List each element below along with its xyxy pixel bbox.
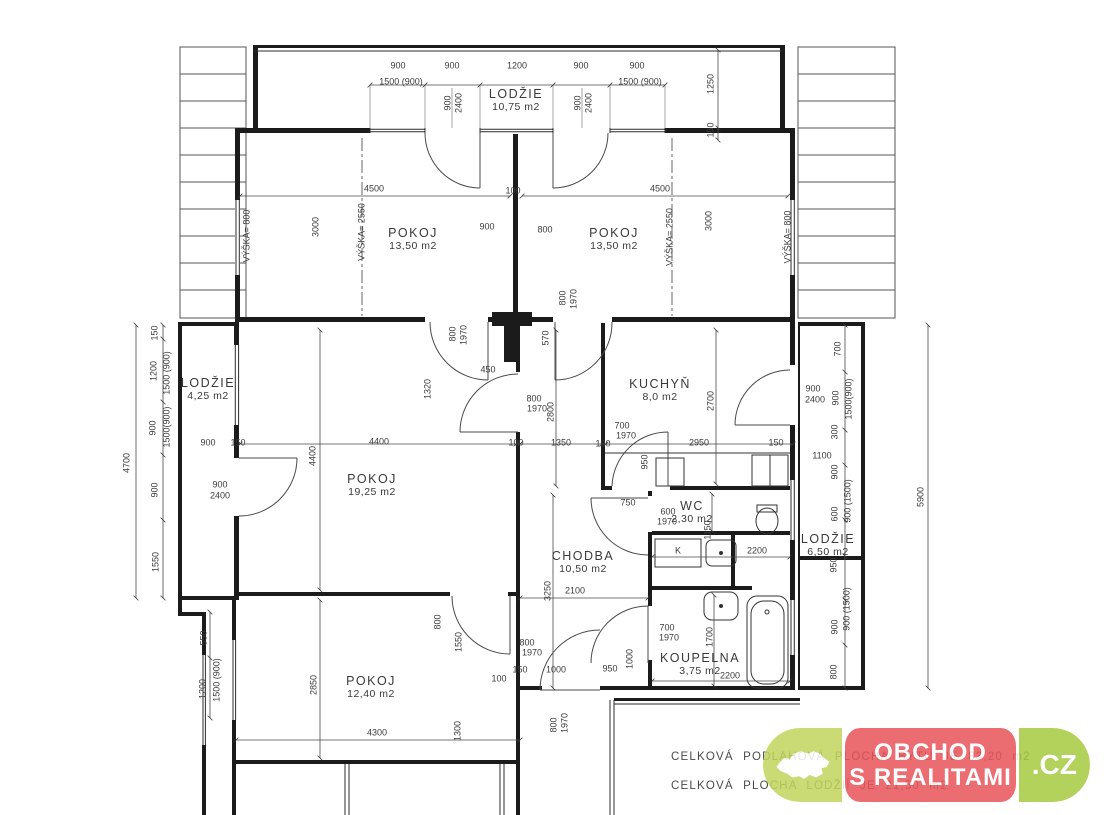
dimension-label: 700 xyxy=(659,624,674,633)
dimension-label: 2850 xyxy=(310,675,319,695)
dimension-label: 100 xyxy=(508,439,523,448)
logo-tld-text: .CZ xyxy=(1032,749,1077,781)
room-area: 4,25 m2 xyxy=(181,390,235,402)
dimension-label: 900 (1500) xyxy=(843,587,852,631)
dimension-label: 1500(900) xyxy=(845,378,854,419)
dimension-label: 2100 xyxy=(565,587,585,596)
dimension-label: 1970 xyxy=(657,518,677,527)
dimension-label: 1970 xyxy=(527,405,547,414)
dimension-label: 900 xyxy=(151,482,160,497)
dimension-label: 150 xyxy=(151,325,160,340)
dimension-label: 1700 xyxy=(706,627,715,647)
room-name: POKOJ xyxy=(388,226,438,240)
dimension-label: 2800 xyxy=(547,402,556,422)
room-area: 13,50 m2 xyxy=(589,240,639,252)
dimension-label: 1500 (900) xyxy=(163,351,172,395)
dimension-label: 3250 xyxy=(544,581,553,601)
dimension-label: 1550 xyxy=(455,632,464,652)
dimension-label: 800 xyxy=(830,664,839,679)
dimension-label: 2200 xyxy=(720,672,740,681)
dimension-label: 4300 xyxy=(367,729,387,738)
dimension-label: 1970 xyxy=(460,325,469,345)
logo-word-obchod: OBCHOD xyxy=(874,740,987,765)
dimension-label: 900 xyxy=(200,439,215,448)
walls xyxy=(178,45,865,815)
dimension-label: 1970 xyxy=(561,713,570,733)
dimension-label: 1200 xyxy=(199,679,208,699)
dimension-label: 1000 xyxy=(626,649,635,669)
dimension-label: 100 xyxy=(505,187,520,196)
dimension-label: 800 xyxy=(526,395,541,404)
dimension-label: 900 xyxy=(390,62,405,71)
dimension-label: 1300 xyxy=(454,721,463,741)
dimension-label: 1500 (900) xyxy=(379,78,423,87)
dimension-label: 150 xyxy=(230,439,245,448)
dimension-label: 450 xyxy=(480,366,495,375)
room-name: POKOJ xyxy=(347,472,397,486)
dimension-label: 800 xyxy=(434,614,443,629)
dimension-label: 300 xyxy=(831,424,840,439)
room-area: 8,0 m2 xyxy=(629,391,691,403)
dimension-label: 1150 xyxy=(704,520,713,539)
dimension-label: 570 xyxy=(542,330,551,345)
dimension-label: 150 xyxy=(768,439,783,448)
dimension-label: 2400 xyxy=(585,93,594,113)
bathtub-icon xyxy=(747,596,788,688)
obchod-s-realitami-logo: OBCHOD S REALITAMI .CZ xyxy=(763,728,1090,802)
dimension-label: 3000 xyxy=(705,211,714,231)
room-area: 6,50 m2 xyxy=(801,546,855,558)
toilet-icon xyxy=(756,505,778,534)
sink-icon xyxy=(704,592,738,620)
logo-text-segment: OBCHOD S REALITAMI xyxy=(842,728,1018,802)
room-name: LODŽIE xyxy=(181,376,235,390)
dimension-label: 900 xyxy=(444,62,459,71)
room-label-pokoj-upper-left: POKOJ13,50 m2 xyxy=(388,226,438,252)
dimension-label: 900 xyxy=(805,385,820,394)
dimension-label: 1320 xyxy=(424,379,433,399)
dimension-label: VÝŠKA= 800 xyxy=(243,210,252,263)
dimension-label: 750 xyxy=(620,499,635,508)
room-name: CHODBA xyxy=(552,549,614,563)
czech-map-icon xyxy=(770,739,836,791)
dimension-label: 600 xyxy=(831,506,840,521)
dimension-label: 2400 xyxy=(455,93,464,113)
dimension-label: 800 xyxy=(537,226,552,235)
dimension-label: 1500 (900) xyxy=(213,658,222,702)
dimension-label: 800 xyxy=(519,639,534,648)
dimension-label: 1500(900) xyxy=(163,406,172,447)
room-label-lodzie-left: LODŽIE4,25 m2 xyxy=(181,376,235,402)
logo-left-segment xyxy=(763,728,842,802)
dimension-label: 900 xyxy=(573,62,588,71)
dimension-label: 2950 xyxy=(689,439,709,448)
dimension-label: 2700 xyxy=(707,391,716,411)
dimension-label: 1350 xyxy=(551,439,571,448)
dimension-label: 2400 xyxy=(210,492,230,501)
dimension-label: 2200 xyxy=(747,547,767,556)
dimension-label: 800 xyxy=(449,326,458,341)
room-label-chodba: CHODBA10,50 m2 xyxy=(552,549,614,575)
kitchen-counter xyxy=(605,453,790,486)
dimension-label: 1500 (900) xyxy=(618,78,662,87)
room-area: 10,75 m2 xyxy=(489,101,543,113)
dimension-label: K xyxy=(675,547,681,556)
room-label-lodzie-right: LODŽIE6,50 m2 xyxy=(801,532,855,558)
room-label-pokoj-main: POKOJ19,25 m2 xyxy=(347,472,397,498)
dimension-label: 800 xyxy=(550,717,559,732)
dimension-label: 950 xyxy=(830,557,839,572)
dimension-label: VÝŠKA= 2550 xyxy=(666,208,675,266)
room-name: WC xyxy=(671,499,712,513)
dimension-label: 1970 xyxy=(616,432,636,441)
dimension-label: VÝŠKA= 800 xyxy=(784,211,793,264)
dimension-label: 900 xyxy=(444,95,453,110)
room-label-kuchyn: KUCHYŇ8,0 m2 xyxy=(629,377,691,403)
dimension-label: 4500 xyxy=(364,185,384,194)
dimension-label: 600 xyxy=(660,508,675,517)
dimension-label: 2400 xyxy=(805,396,825,405)
dimension-label: 550 xyxy=(200,630,209,645)
dimension-label: 1970 xyxy=(570,289,579,309)
dimension-label: 900 (1500) xyxy=(844,479,853,523)
dimension-label: VÝŠKA= 2550 xyxy=(358,203,367,261)
dimension-label: 4700 xyxy=(123,453,132,473)
dimension-label: 1200 xyxy=(150,361,159,381)
floor-plan-page: LODŽIE10,75 m2POKOJ13,50 m2POKOJ13,50 m2… xyxy=(0,0,1114,815)
dimension-label: 900 xyxy=(149,420,158,435)
dimension-label: 150 xyxy=(707,122,716,137)
hatch-band-right xyxy=(798,47,895,318)
room-area: 19,25 m2 xyxy=(347,486,397,498)
dimension-label: 1970 xyxy=(659,634,679,643)
room-name: POKOJ xyxy=(589,226,639,240)
dimension-label: 100 xyxy=(491,675,506,684)
dimension-label: 900 xyxy=(832,390,841,405)
room-area: 10,50 m2 xyxy=(552,563,614,575)
room-label-pokoj-bottom: POKOJ12,40 m2 xyxy=(346,674,396,700)
room-label-lodzie-top: LODŽIE10,75 m2 xyxy=(489,87,543,113)
room-name: KOUPELNA xyxy=(660,651,740,665)
room-name: LODŽIE xyxy=(801,532,855,546)
dimension-label: 700 xyxy=(614,422,629,431)
dimension-label: 900 xyxy=(212,481,227,490)
dimension-label: 950 xyxy=(602,665,617,674)
dimension-label: 900 xyxy=(831,464,840,479)
dimension-label: 900 xyxy=(629,62,644,71)
logo-tld-segment: .CZ xyxy=(1019,728,1090,802)
dimension-label: 100 xyxy=(595,440,610,449)
dimension-label: 1550 xyxy=(152,552,161,572)
dimension-label: 1200 xyxy=(507,62,527,71)
room-area: 12,40 m2 xyxy=(346,688,396,700)
dimension-label: 150 xyxy=(512,666,527,675)
dimension-label: 1970 xyxy=(522,649,542,658)
dimension-label: 900 xyxy=(831,619,840,634)
room-name: LODŽIE xyxy=(489,87,543,101)
dimension-label: 1000 xyxy=(546,666,566,675)
room-area: 13,50 m2 xyxy=(388,240,438,252)
logo-word-s-realitami: S REALITAMI xyxy=(849,765,1012,790)
dimension-label: 700 xyxy=(834,341,843,356)
dimension-label: 3000 xyxy=(312,217,321,237)
dimension-label: 900 xyxy=(574,95,583,110)
dimension-label: 950 xyxy=(641,454,650,469)
dimension-label: 1100 xyxy=(812,452,831,461)
dimension-label: 4400 xyxy=(369,438,389,447)
dimension-label: 4500 xyxy=(650,185,670,194)
room-label-pokoj-upper-right: POKOJ13,50 m2 xyxy=(589,226,639,252)
dimension-label: 4400 xyxy=(309,446,318,466)
room-name: POKOJ xyxy=(346,674,396,688)
dimension-label: 1250 xyxy=(707,74,716,94)
dimension-label: 900 xyxy=(479,223,494,232)
dimension-label: 5900 xyxy=(917,487,926,507)
room-name: KUCHYŇ xyxy=(629,377,691,391)
dimension-label: 800 xyxy=(559,290,568,305)
